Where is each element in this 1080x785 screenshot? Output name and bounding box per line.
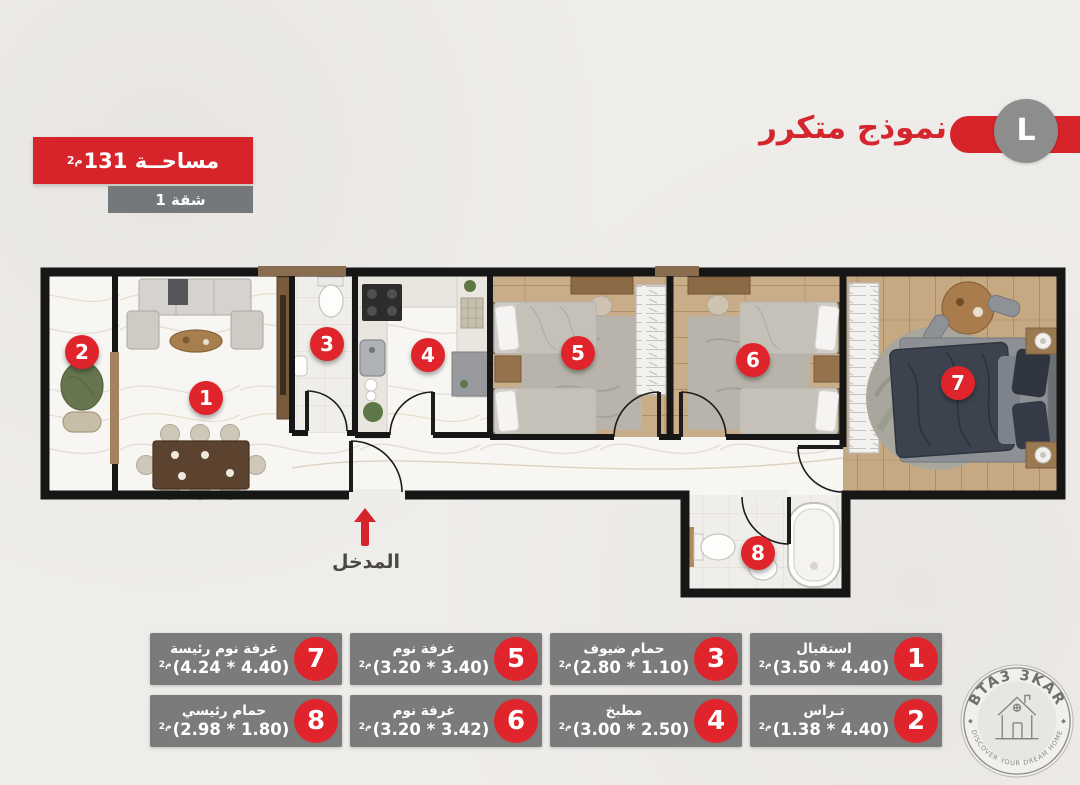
room-name: حمام رئيسي	[182, 703, 266, 720]
legend-room-3: حمام ضيوف (2.80 * 1.10)م2 3	[550, 633, 742, 685]
room-number-badge: 1	[894, 637, 938, 681]
room-number-badge: 5	[494, 637, 538, 681]
room-dims: (2.80 * 1.10)	[573, 658, 690, 677]
room-dims: (3.20 * 3.40)	[373, 658, 490, 677]
legend-room-8: حمام رئيسي (2.98 * 1.80)م2 8	[150, 695, 342, 747]
room-name: تـراس	[803, 703, 844, 720]
room-number-badge: 6	[494, 699, 538, 743]
room-number-badge: 8	[294, 699, 338, 743]
legend-room-1: استقبال (3.50 * 4.40)م2 1	[750, 633, 942, 685]
plan-marker-3: 3	[310, 327, 344, 361]
wall-lintel-1	[258, 266, 346, 276]
room-name: غرفة نوم	[393, 641, 456, 658]
brand-logo: BTA3 3KAR DISCOVER YOUR DREAM HOME	[958, 662, 1076, 780]
legend-room-6: غرفة نوم (3.20 * 3.42)م2 6	[350, 695, 542, 747]
plan-marker-5: 5	[561, 336, 595, 370]
room-dims: (2.98 * 1.80)	[173, 720, 290, 739]
room-number-badge: 2	[894, 699, 938, 743]
legend-room-7: غرفة نوم رئيسة (4.24 * 4.40)م2 7	[150, 633, 342, 685]
plan-marker-6: 6	[736, 343, 770, 377]
plan-marker-2: 2	[65, 335, 99, 369]
plan-marker-4: 4	[411, 338, 445, 372]
flyer-page: { "header": { "plan_title": "نموذج متكرر…	[0, 0, 1080, 785]
entrance-arrow-icon	[354, 508, 376, 548]
legend-room-5: غرفة نوم (3.20 * 3.40)م2 5	[350, 633, 542, 685]
room-name: غرفة نوم رئيسة	[170, 641, 278, 658]
room-dims: (4.24 * 4.40)	[173, 658, 290, 677]
plan-marker-7: 7	[941, 366, 975, 400]
entrance-label: المدخل	[324, 551, 408, 573]
legend-room-2: تـراس (1.38 * 4.40)م2 2	[750, 695, 942, 747]
room-name: استقبال	[796, 641, 851, 658]
plan-marker-8: 8	[741, 536, 775, 570]
room-number-badge: 4	[694, 699, 738, 743]
room-name: مطبخ	[606, 703, 643, 720]
plan-marker-1: 1	[189, 381, 223, 415]
room-name: حمام ضيوف	[583, 641, 664, 658]
wall-lintel-2	[655, 266, 699, 276]
room-dims: (3.20 * 3.42)	[373, 720, 490, 739]
legend-room-4: مطبخ (3.00 * 2.50)م2 4	[550, 695, 742, 747]
terrace-slider	[110, 352, 119, 464]
room-number-badge: 3	[694, 637, 738, 681]
room-dims: (3.50 * 4.40)	[773, 658, 890, 677]
room-number-badge: 7	[294, 637, 338, 681]
room-dims: (3.00 * 2.50)	[573, 720, 690, 739]
terrace-lounge-chair	[61, 362, 103, 432]
room-name: غرفة نوم	[393, 703, 456, 720]
room-dims: (1.38 * 4.40)	[773, 720, 890, 739]
